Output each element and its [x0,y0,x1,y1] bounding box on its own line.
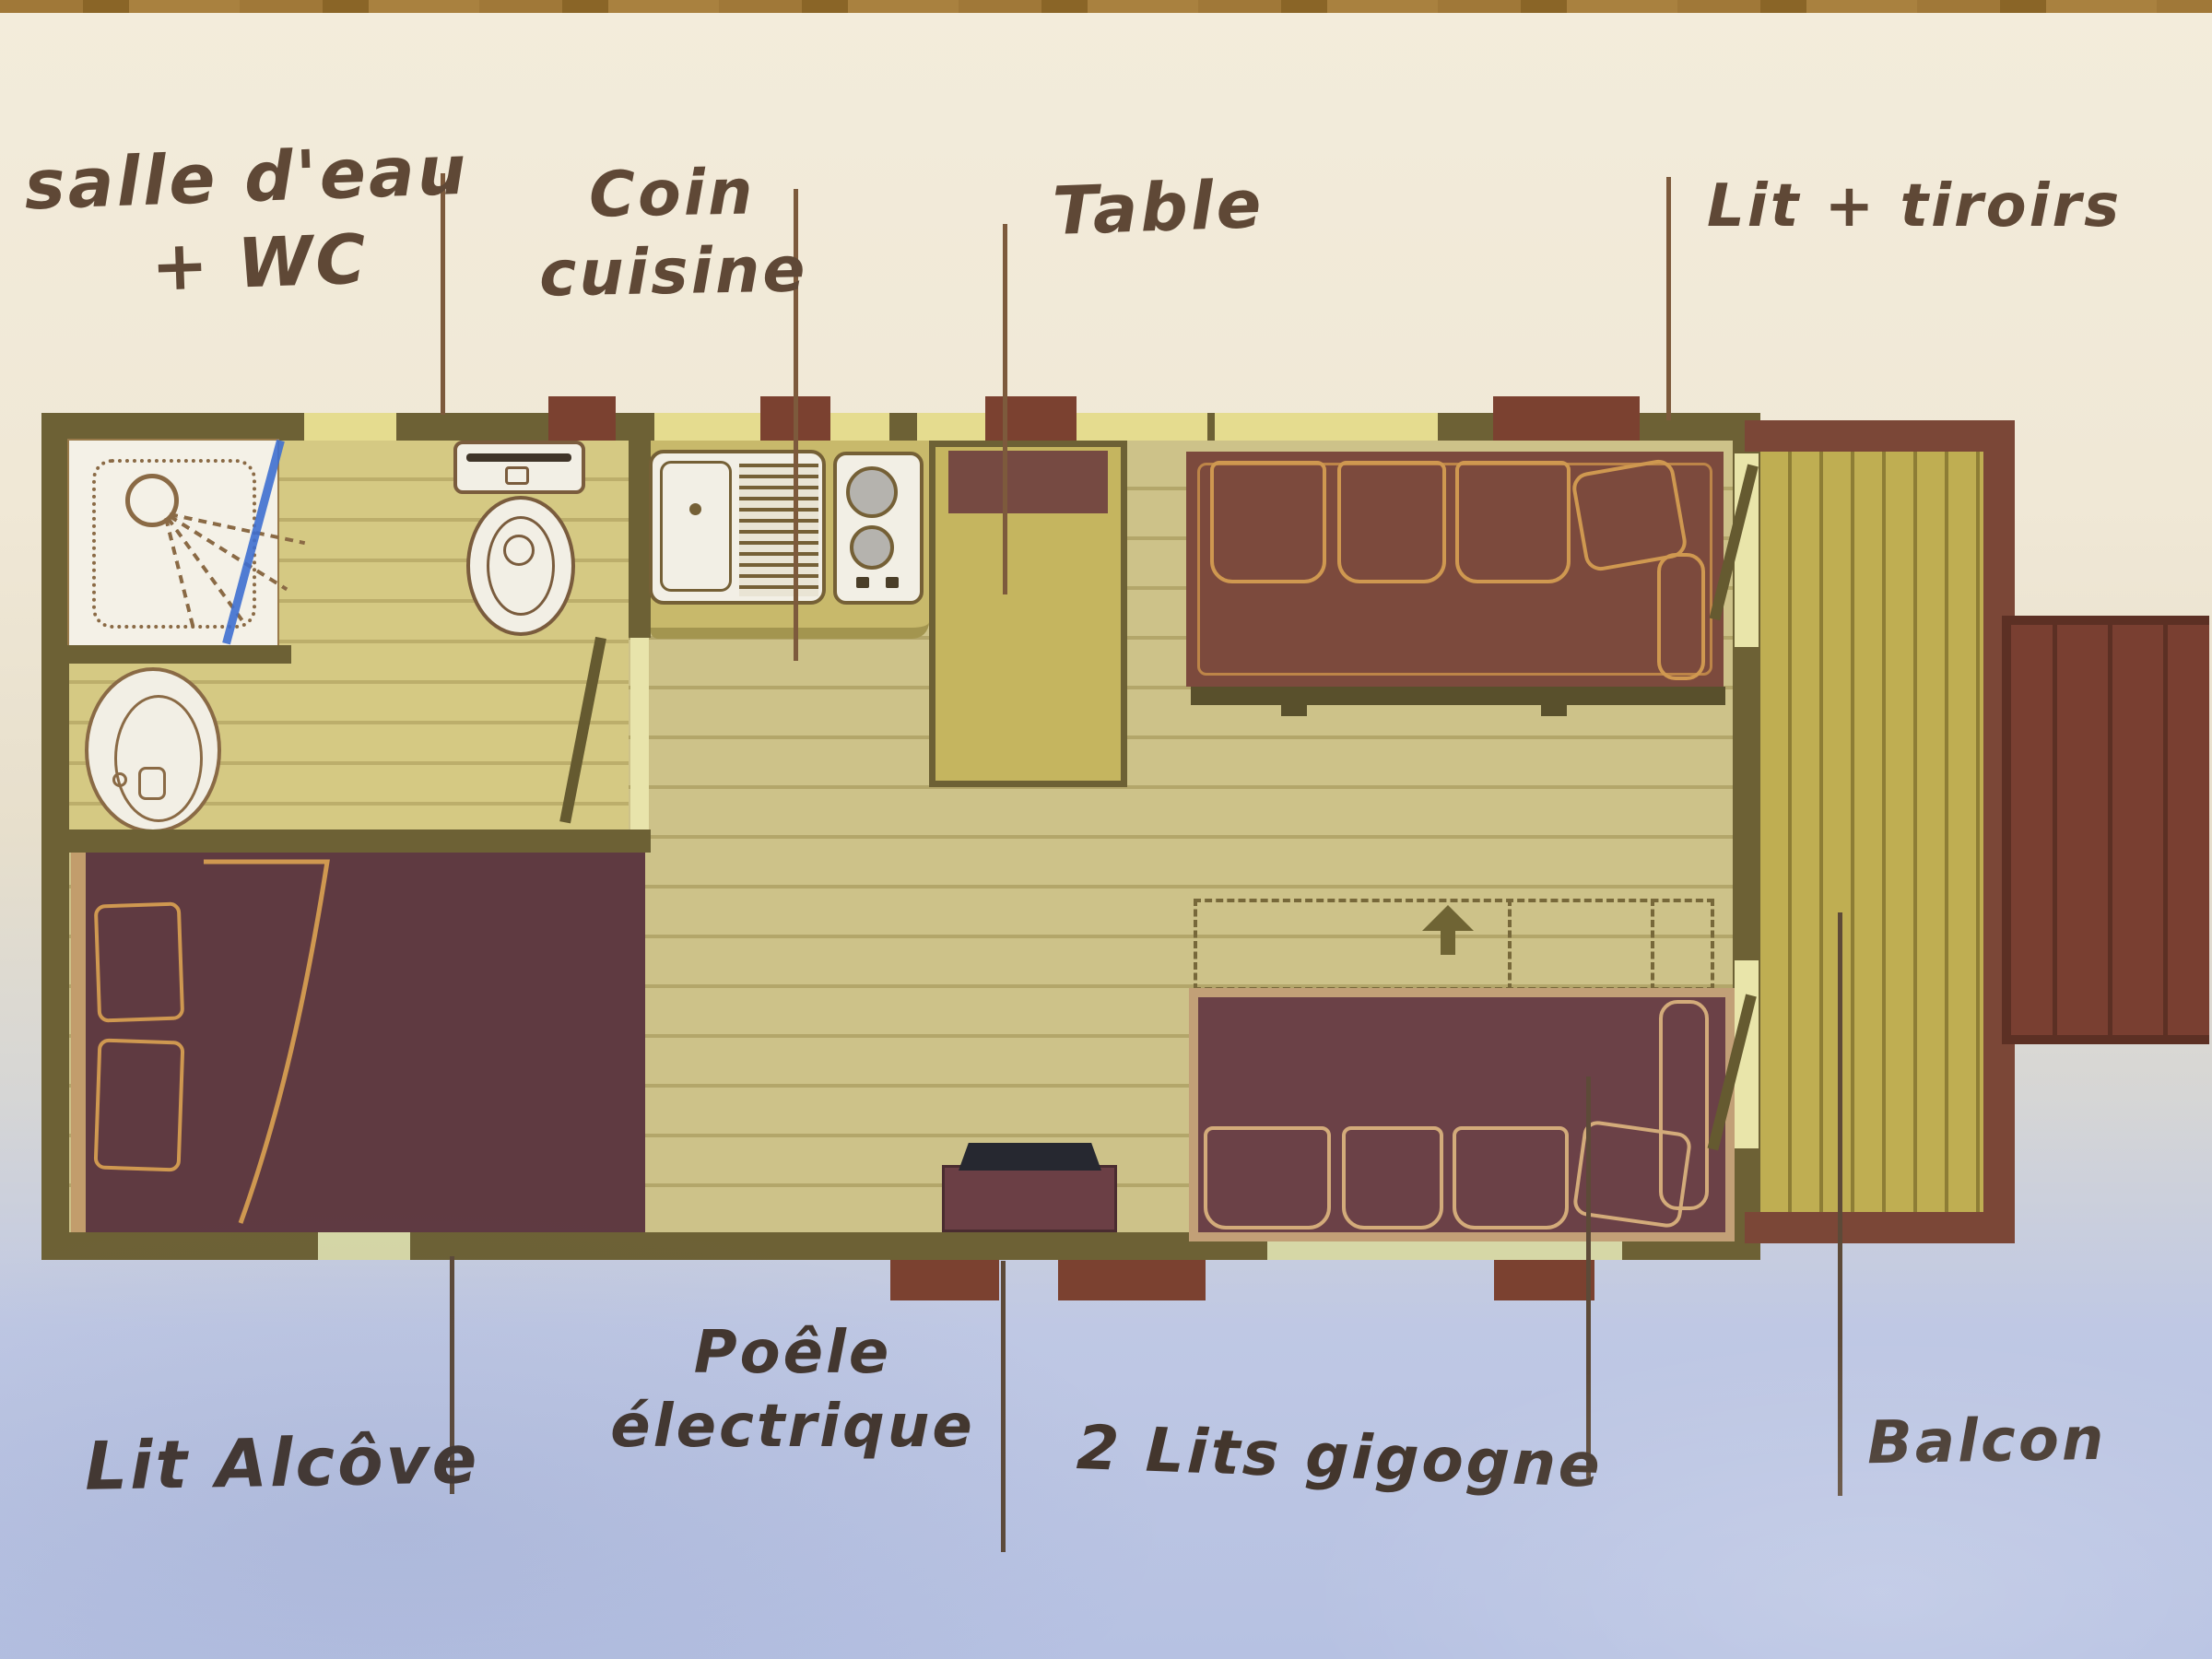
window-top-1 [304,413,396,441]
sofa-foot [1281,705,1307,716]
sofa-cushion [1455,461,1571,583]
label-poele-electrique: Poêle électrique [590,1316,995,1464]
shutter-tab [985,396,1077,441]
label-coin-line2: cuisine [535,230,812,313]
label-lit-tiroirs: Lit + tiroirs [1707,170,2122,243]
label-poele-line2: électrique [590,1390,995,1464]
label-coin-line1: Coin [534,152,811,235]
label-table: Table [1051,162,1265,253]
toilet-bowl-inner [487,516,555,616]
kitchen-sink-basin [660,461,732,592]
stair-tread-line [2108,625,2112,1035]
pull-out-bed-divider [1651,899,1654,991]
stair-tread-line [2163,625,2168,1035]
shutter-tab [1493,396,1640,441]
label-coin-cuisine: Coin cuisine [534,152,813,313]
stair-tread-line [2053,625,2057,1035]
shower-partition-wall [41,645,291,664]
label-balcon: Balcon [1866,1403,2107,1481]
shutter-tab [1494,1260,1594,1300]
balcony-railing-bottom [1745,1212,2015,1243]
shutter-tab [1058,1260,1206,1300]
sofa-armrest [1657,553,1705,680]
toilet-cistern-slot [466,453,571,462]
electric-stove-top [959,1143,1101,1171]
hob-burner-small [850,525,894,570]
window-bottom-1 [318,1232,410,1260]
toilet-drain [503,535,535,566]
label-poele-line1: Poêle [590,1316,995,1390]
sofa-cushion [1337,461,1446,583]
balcony-railing-top [1745,420,2015,452]
gigogne-armrest [1659,1000,1709,1210]
label-salle-deau-wc: salle d'eau + WC [23,130,425,314]
bathroom-bottom-wall [41,829,651,853]
window-top-4 [1215,413,1438,441]
gigogne-cushion [1204,1126,1331,1230]
pointer-line-poele [1001,1261,1006,1552]
label-salle-deau-line2: + WC [26,215,425,313]
pull-out-arrow-stem [1441,927,1455,955]
gigogne-cushion [1342,1126,1443,1230]
table-symbol [948,451,1108,513]
pointer-line-gigogne [1586,1077,1591,1478]
washbasin-bowl [114,695,203,822]
washbasin-fitting [138,767,166,800]
wood-table-edge [0,0,2212,13]
pointer-line-lit-tiroirs [1666,177,1671,420]
toilet-flush-knob [505,466,529,485]
shutter-tab [890,1260,999,1300]
pointer-line-balcon [1838,912,1842,1496]
label-salle-deau-line1: salle d'eau [23,130,422,229]
pull-out-bed-divider [1508,899,1512,991]
bathroom-partition-wall [629,413,651,638]
hob-knob [886,577,899,588]
hob-burner-large [846,466,898,518]
label-lits-gigogne: 2 Lits gigogne [1076,1410,1604,1504]
shutter-tab [548,396,616,441]
bed-blanket-outline [86,853,645,1232]
sofa-foot [1541,705,1567,716]
exterior-stairs [2002,616,2209,1044]
electric-stove-symbol [942,1165,1117,1232]
sofa-cushion [1210,461,1326,583]
hob-knob [856,577,869,588]
gigogne-cushion [1453,1126,1569,1230]
floor-plan-photo: salle d'eau + WC Coin cuisine Table Lit … [0,0,2212,1659]
kitchen-sink-drain [689,503,701,515]
kitchen-drainer [739,464,818,596]
alcove-bed-headboard [71,853,86,1232]
label-lit-alcove: Lit Alcôve [84,1418,480,1507]
bathroom-door-opening [630,638,649,837]
pointer-line-table [1003,224,1007,594]
washbasin-tap [112,772,127,787]
sofa-base [1191,687,1725,705]
balcony-deck [1760,450,1985,1232]
